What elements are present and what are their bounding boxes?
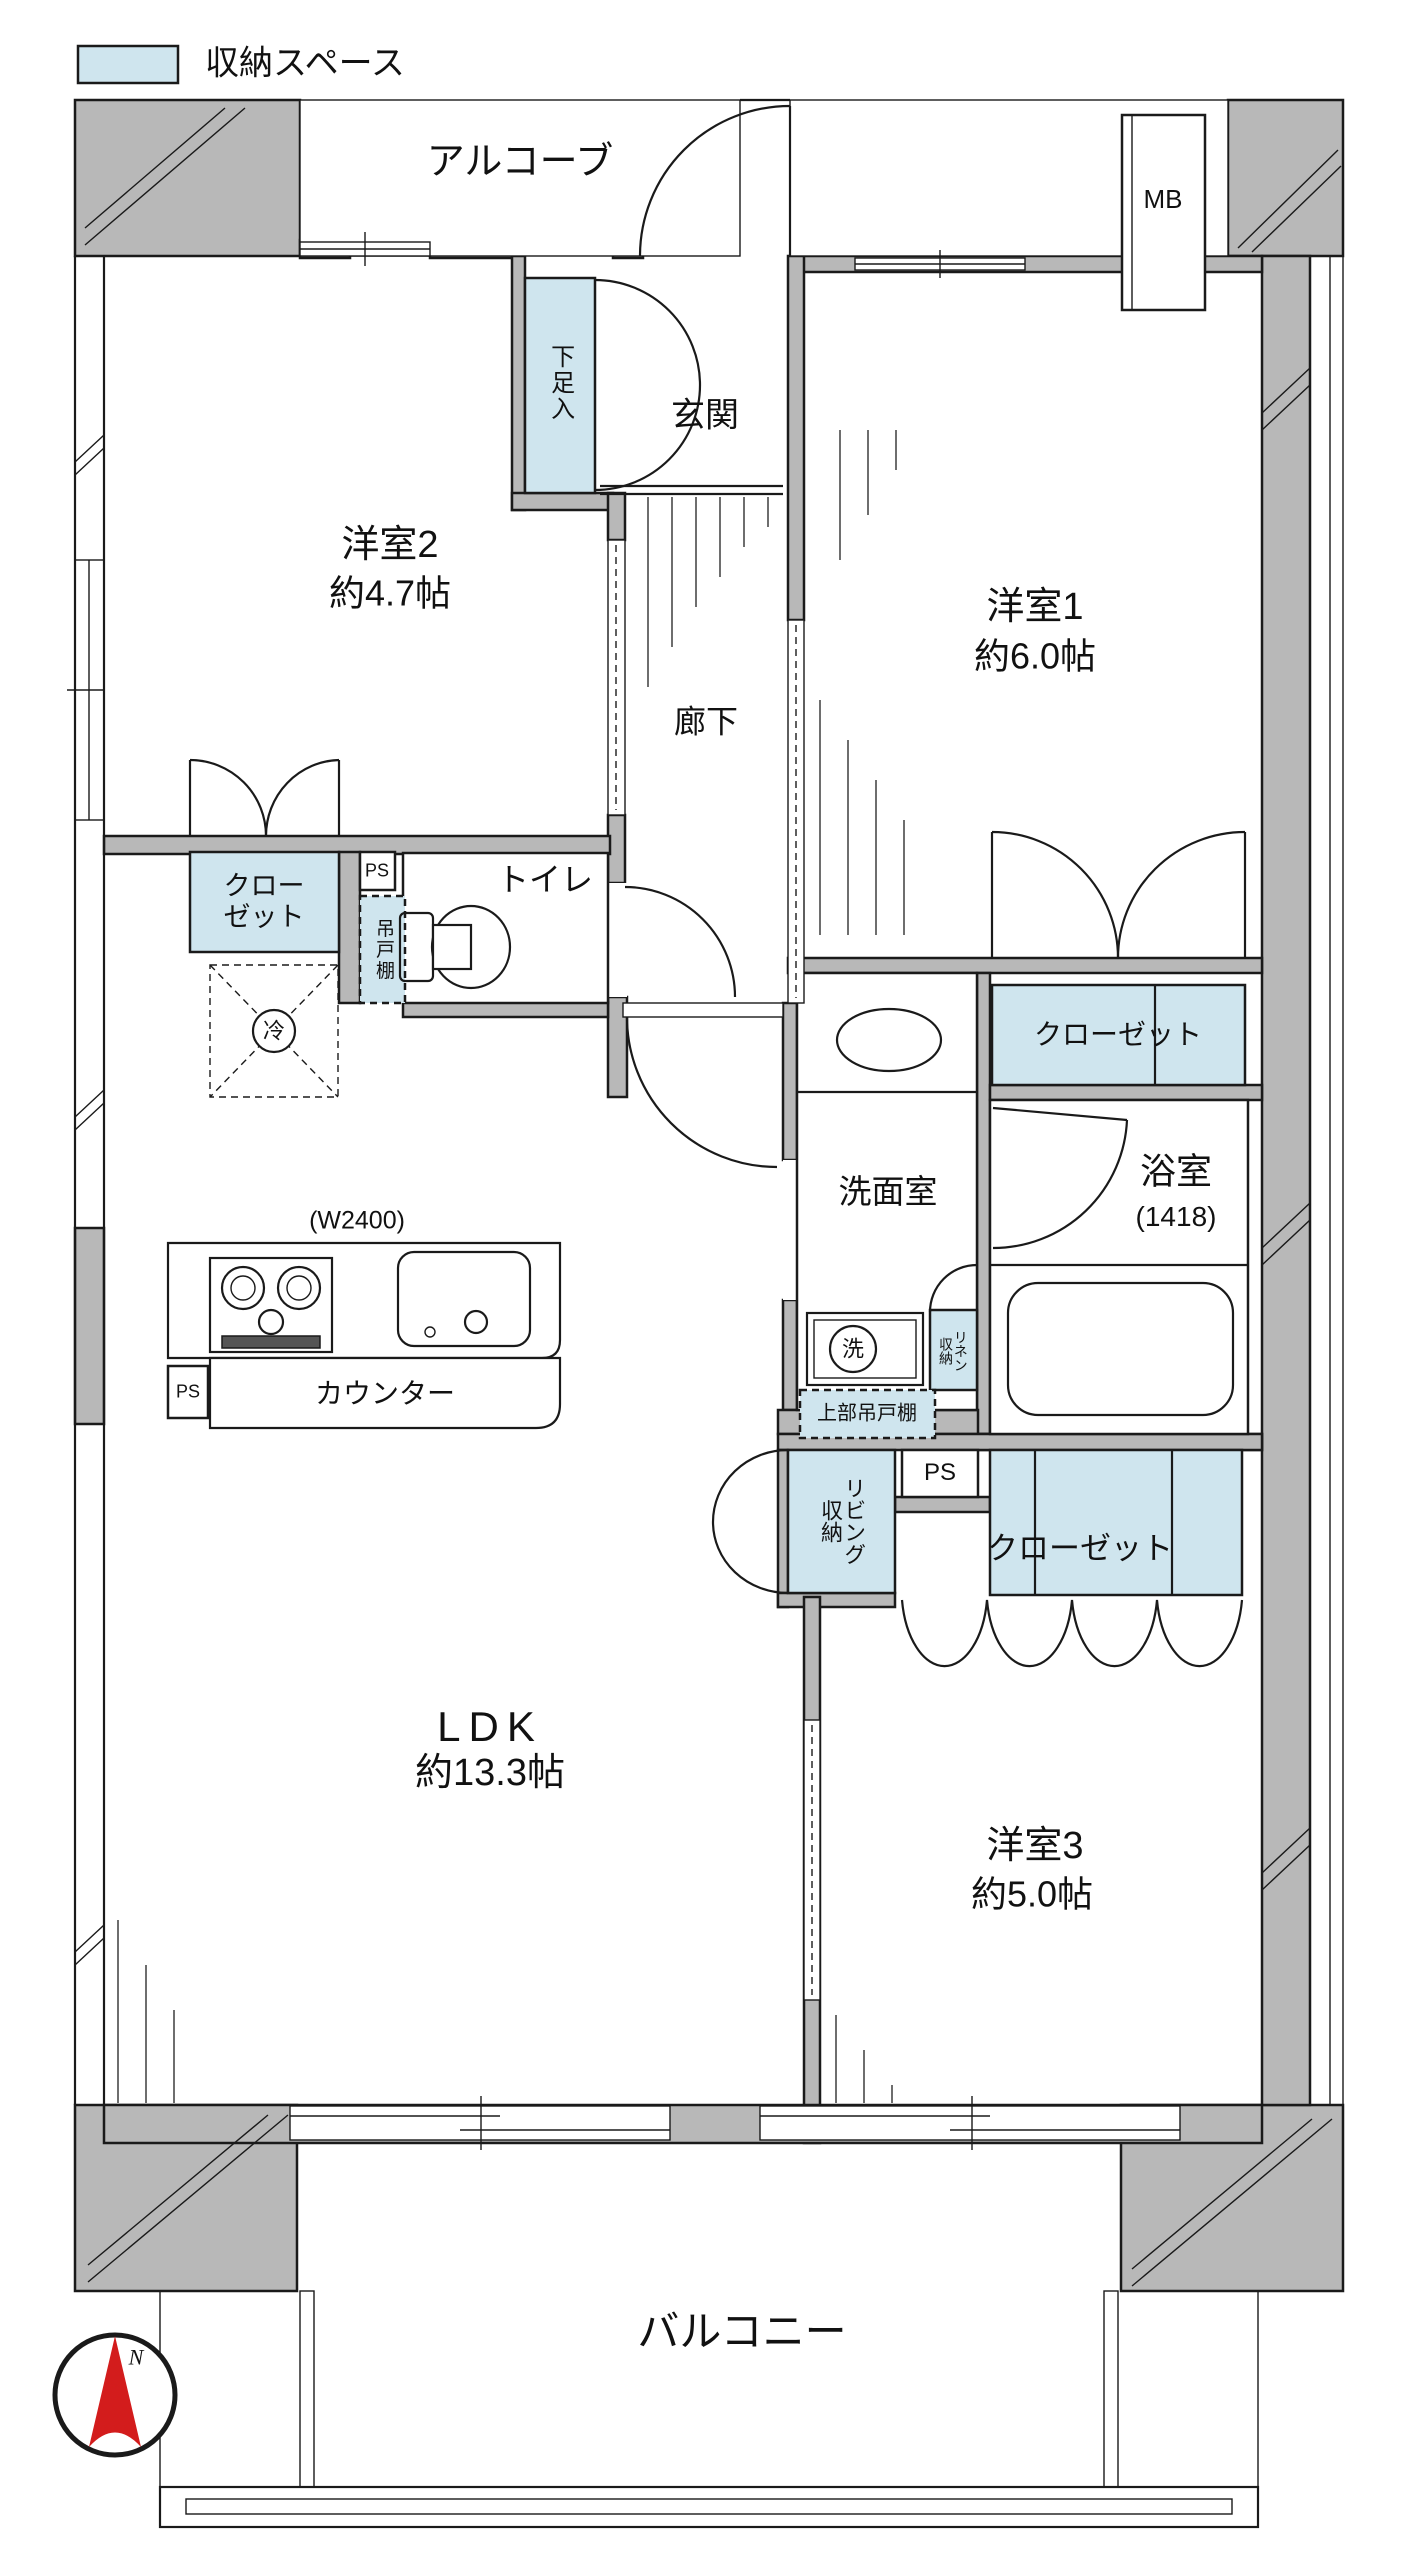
counter-label: カウンター	[315, 1378, 455, 1410]
pipe-space-1-label: PS	[365, 861, 389, 882]
closet-room3-box	[990, 1450, 1242, 1595]
grill	[222, 1336, 320, 1348]
closet-room1-label: クローゼット	[1034, 1019, 1202, 1051]
pipe-space-2-label: PS	[924, 1459, 956, 1487]
ldk-name: LDK	[437, 1703, 543, 1751]
linen-label: リネン収納	[938, 1327, 967, 1375]
ldk-size: 約13.3帖	[415, 1752, 565, 1796]
hall-door-frame	[623, 1003, 783, 1017]
shoe-cabinet-label: 下足入	[547, 344, 572, 422]
washer-label: 洗	[842, 1336, 864, 1361]
pipe-space-3-label: PS	[176, 1382, 200, 1403]
room2-size: 約4.7帖	[329, 572, 451, 613]
closet-room3-label: クローゼット	[987, 1531, 1173, 1567]
room1-size: 約6.0帖	[974, 635, 1096, 676]
counter-width-label: (W2400)	[309, 1207, 405, 1236]
meter-box-label: MB	[1144, 185, 1183, 215]
washroom-opening	[783, 1160, 797, 1300]
bathroom-name: 浴室	[1140, 1150, 1212, 1191]
floor-plan: 収納スペース アルコーブ MB 玄関 下足入 洋室2 約4.7帖 洋室1 約6.…	[0, 0, 1417, 2560]
room3-size: 約5.0帖	[971, 1873, 1093, 1914]
closet-room2-label: クローゼット	[216, 871, 312, 933]
washroom-label: 洗面室	[839, 1173, 938, 1211]
room3-name: 洋室3	[986, 1825, 1083, 1869]
compass	[55, 2335, 175, 2455]
legend-label: 収納スペース	[205, 44, 405, 83]
fridge-label: 冷	[263, 1018, 285, 1043]
entrance-label: 玄関	[671, 396, 739, 435]
upper-hanging-label: 上部吊戸棚	[817, 1403, 917, 1426]
floor-plan-drawing	[0, 0, 1417, 2560]
toilet-label: トイレ	[497, 862, 593, 899]
room1-name: 洋室1	[986, 586, 1083, 630]
toilet-seat	[433, 925, 471, 969]
bathroom-size: (1418)	[1136, 1201, 1217, 1233]
alcove-label: アルコーブ	[427, 141, 614, 185]
legend-swatch	[78, 46, 178, 83]
hallway-label: 廊下	[674, 704, 738, 741]
compass-north-label: N	[129, 2344, 144, 2369]
room2-name: 洋室2	[341, 524, 438, 568]
hanging-cupboard-label: 吊戸棚	[373, 919, 393, 982]
balcony-label: バルコニー	[637, 2308, 846, 2356]
living-storage-label: リビング収納	[819, 1469, 865, 1573]
